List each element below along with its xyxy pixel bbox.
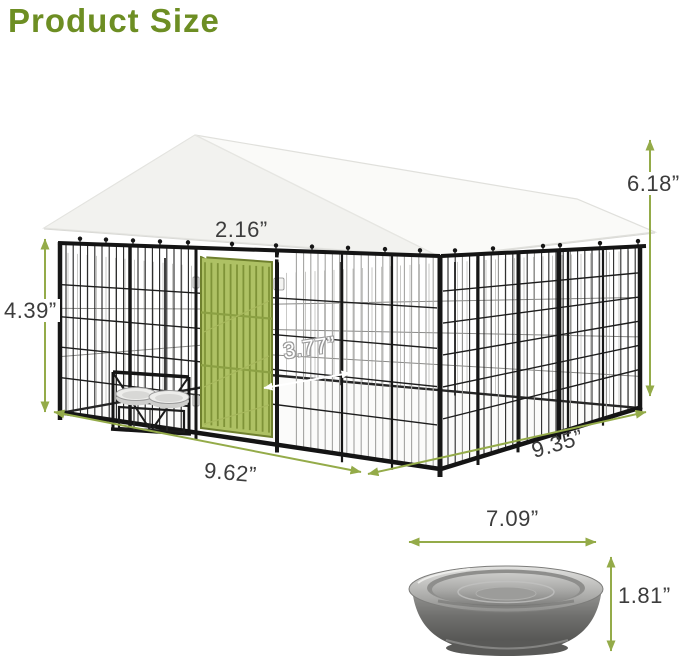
kennel-illustration: [0, 0, 679, 664]
dim-label-front-width: 9.62”: [203, 459, 257, 487]
dim-label-door-width: 2.16”: [215, 218, 268, 241]
green-door: [193, 257, 284, 437]
dim-label-bowl-diameter: 7.09”: [486, 507, 539, 530]
steel-bowl: [409, 566, 603, 656]
canopy-roof: [44, 135, 655, 258]
page-title: Product Size: [8, 2, 220, 40]
dim-label-total-height: 6.18”: [624, 172, 679, 195]
dim-label-bowl-height: 1.81”: [618, 584, 671, 607]
product-size-diagram: Product Size: [0, 0, 679, 664]
dim-label-panel-height: 4.39”: [1, 299, 60, 322]
